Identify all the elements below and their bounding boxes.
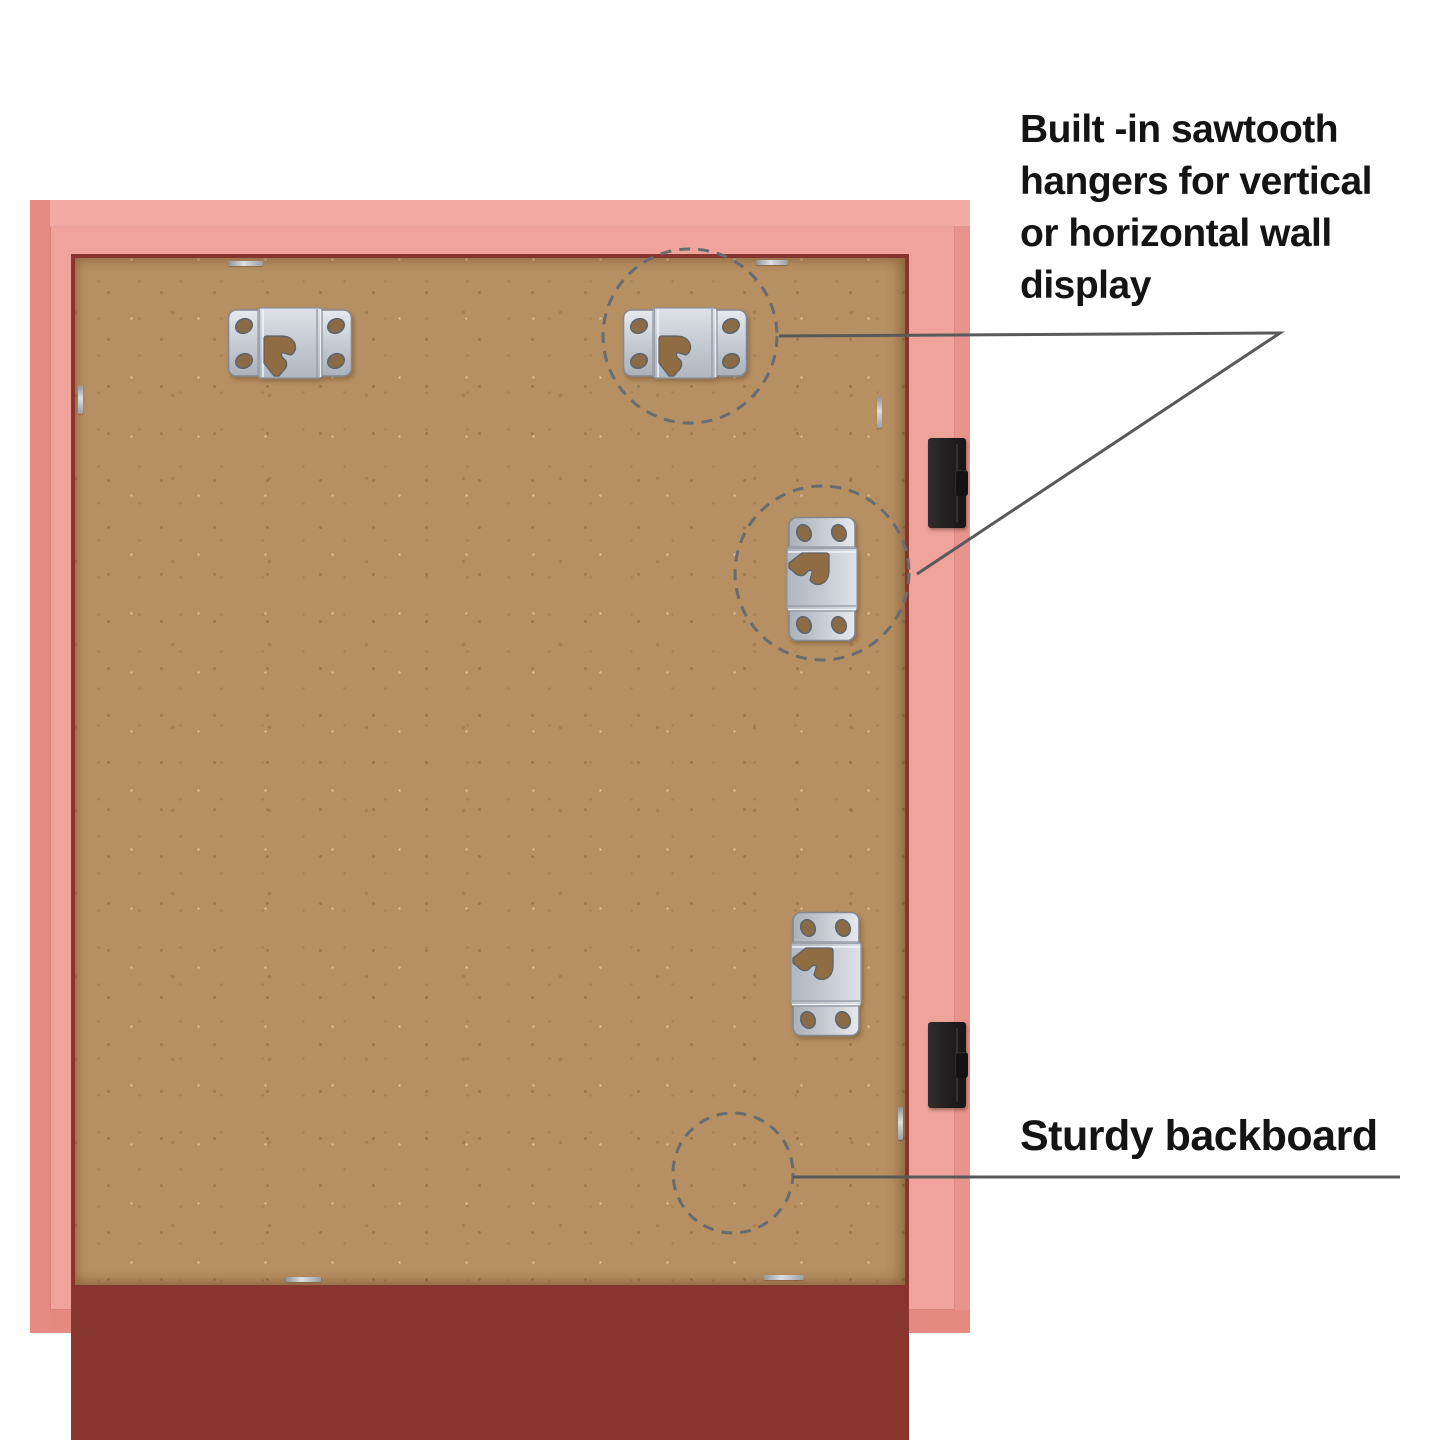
annotation-line: display xyxy=(1020,260,1372,312)
annotation-line: hangers for vertical xyxy=(1020,156,1372,208)
retainer-clip-upper xyxy=(928,438,966,528)
annotation-backboard: Sturdy backboard xyxy=(1020,1112,1378,1160)
staple xyxy=(877,397,882,428)
staple xyxy=(78,385,83,414)
product-annotation-image: Built -in sawtooth hangers for vertical … xyxy=(0,0,1440,1440)
annotation-line: Sturdy backboard xyxy=(1020,1112,1378,1160)
frame-top-face xyxy=(50,200,970,227)
staple xyxy=(898,1107,903,1140)
retainer-clip-lower xyxy=(928,1022,966,1108)
staple xyxy=(756,260,788,265)
frame-left-side-face xyxy=(30,200,51,1333)
backboard xyxy=(75,258,905,1285)
sawtooth-hanger-middle-right xyxy=(784,516,860,642)
staple xyxy=(763,1275,804,1280)
staple xyxy=(286,1277,321,1282)
annotation-sawtooth-hangers: Built -in sawtooth hangers for vertical … xyxy=(1020,104,1372,312)
annotation-line: or horizontal wall xyxy=(1020,208,1372,260)
annotation-line: Built -in sawtooth xyxy=(1020,104,1372,156)
sawtooth-hanger-lower-right xyxy=(788,911,864,1037)
picture-frame-back xyxy=(30,200,970,1333)
sawtooth-hanger-top-right xyxy=(622,305,748,381)
staple xyxy=(228,261,263,266)
sawtooth-hanger-top-left xyxy=(227,305,353,381)
frame-right-side-face xyxy=(954,226,970,1310)
